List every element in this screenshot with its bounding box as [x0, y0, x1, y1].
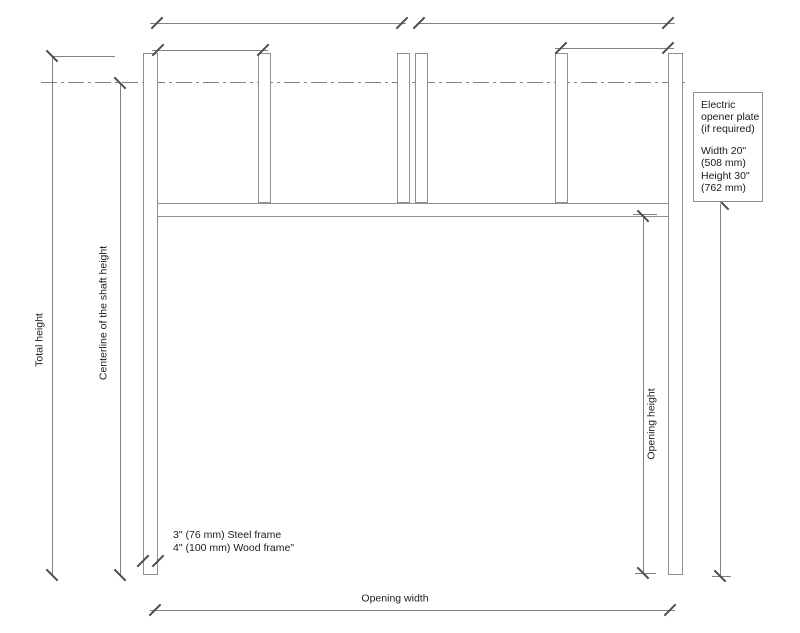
- dim-shaft-height-line: [120, 83, 121, 575]
- opener-plate-width-label: Width 20": [701, 145, 762, 157]
- dim-bracket-right-line: [555, 48, 674, 49]
- opener-plate-height-metric: (762 mm): [701, 182, 762, 194]
- opener-plate-note-line1: Electric: [701, 99, 762, 111]
- bracket-post-left: [258, 53, 271, 203]
- opener-plate-note-line2: opener plate: [701, 111, 762, 123]
- opener-plate-leader-line: [720, 204, 721, 576]
- frame-post-left: [143, 53, 158, 575]
- shaft-centerline-line: [41, 82, 688, 83]
- frame-post-right: [668, 53, 683, 575]
- frame-size-note-line1: 3" (76 mm) Steel frame: [173, 529, 294, 542]
- dim-bracket-left-line: [152, 50, 268, 51]
- opening-height-label: Opening height: [646, 388, 659, 459]
- dim-opening-width-line: [150, 610, 675, 611]
- dim-top-right-line: [417, 23, 675, 24]
- bracket-post-right: [555, 53, 568, 203]
- opening-width-label: Opening width: [361, 593, 428, 606]
- door-frame-elevation-drawing: Total height Centerline of the shaft hei…: [0, 0, 800, 633]
- opener-plate-height-label: Height 30": [701, 170, 762, 182]
- dim-total-height-extension: [52, 56, 115, 57]
- total-height-label: Total height: [34, 313, 47, 367]
- opener-plate-note-box: Electric opener plate (if required) Widt…: [693, 92, 763, 202]
- dim-opening-height-line: [643, 216, 644, 573]
- opener-plate-width-metric: (508 mm): [701, 157, 762, 169]
- dim-top-left-line: [150, 23, 406, 24]
- frame-size-note-line2: 4" (100 mm) Wood frame": [173, 542, 294, 555]
- header-bottom-line: [158, 203, 668, 204]
- dim-total-height-line: [52, 56, 53, 575]
- opening-top-line: [158, 216, 668, 217]
- dim-opening-height-top-extension: [633, 214, 657, 215]
- frame-size-note: 3" (76 mm) Steel frame 4" (100 mm) Wood …: [173, 529, 294, 555]
- center-post-left: [397, 53, 410, 203]
- center-post-right: [415, 53, 428, 203]
- opener-plate-note-line3: (if required): [701, 123, 762, 135]
- shaft-centerline-label: Centerline of the shaft height: [98, 246, 111, 380]
